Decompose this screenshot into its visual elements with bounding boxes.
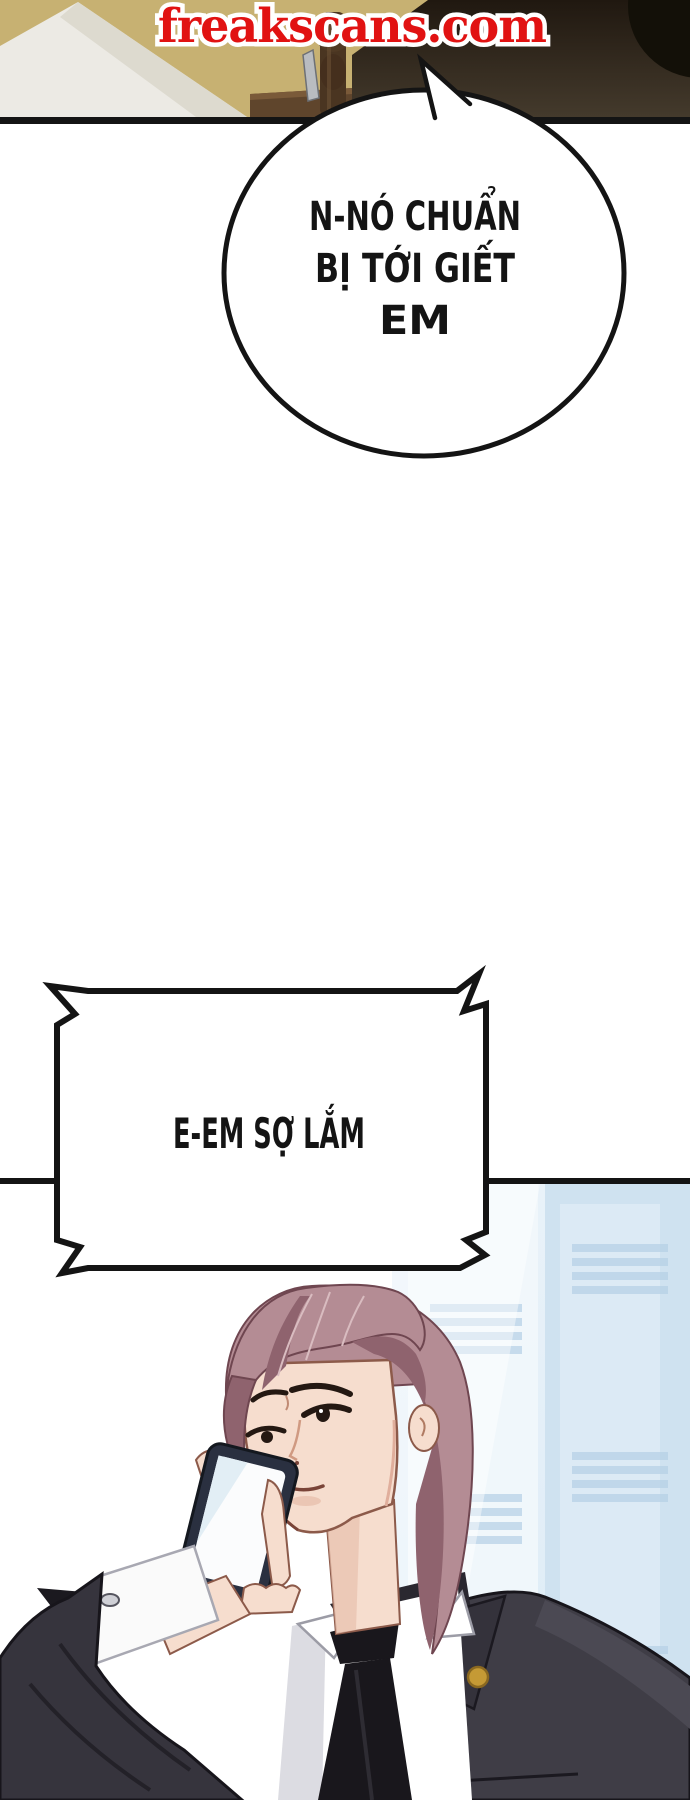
shout-box-text: E-EM SỢ LẮM [173, 1102, 365, 1158]
bubble-line-1: N-NÓ CHUẨN [309, 185, 521, 240]
left-arm [0, 1546, 242, 1800]
site-banner: freakscans.com [0, 0, 690, 70]
site-banner-text: freakscans.com [158, 0, 546, 54]
webtoon-page: freakscans.com N-NÓ CHUẨN BỊ TỚI GIẾT EM [0, 0, 690, 1800]
speech-bubble: N-NÓ CHUẨN BỊ TỚI GIẾT EM [180, 40, 670, 470]
eye-left-iris [261, 1431, 273, 1443]
ear [409, 1405, 439, 1451]
lapel-pin [468, 1667, 488, 1687]
shout-box: E-EM SỢ LẮM [30, 955, 510, 1290]
bubble-line-2: BỊ TỚI GIẾT [315, 238, 516, 292]
bubble-line-3: EM [379, 298, 451, 344]
lower-lip-shade [291, 1496, 321, 1506]
fingers [240, 1584, 300, 1614]
eye-right-iris [316, 1406, 330, 1422]
cufflink [101, 1594, 119, 1606]
